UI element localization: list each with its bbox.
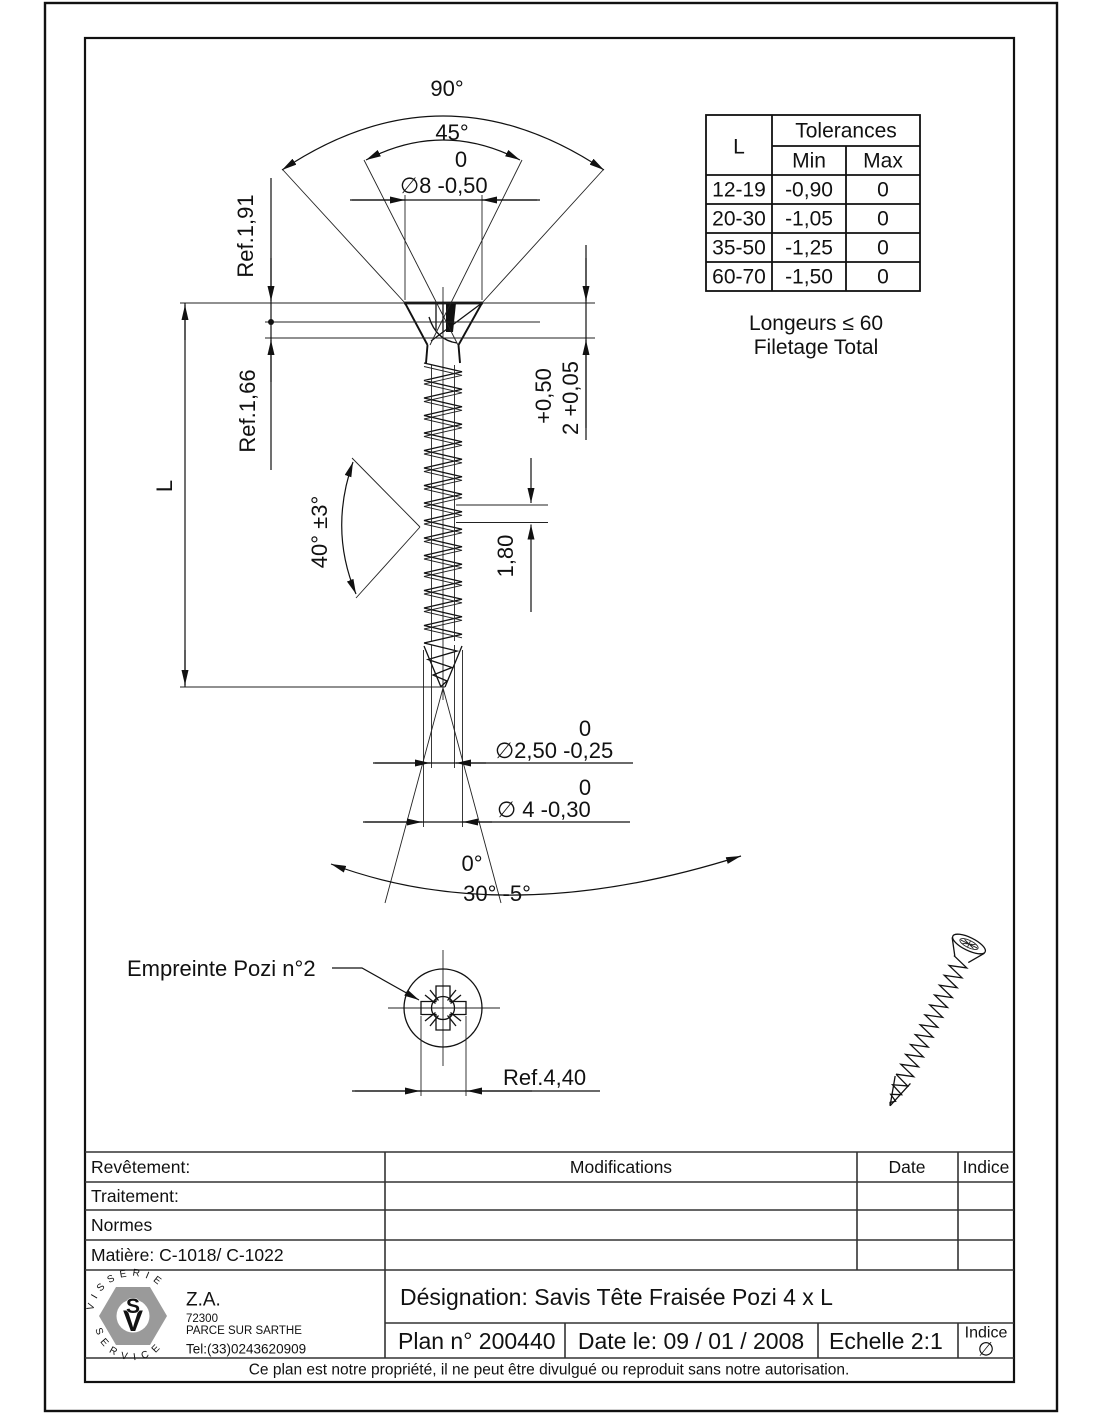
dim-head-dia-label: ∅8 -0,50 [400,173,488,198]
echelle-value: Echelle 2:1 [829,1328,943,1354]
designation-value: Désignation: Savis Tête Fraisée Pozi 4 x… [400,1284,833,1310]
dim-head-height-tol-label: +0,50 [531,368,556,424]
dim-tip-angle-tol-label: 0° [461,851,482,876]
logo-monogram-s: S [126,1295,140,1318]
dim-head-dia-tol-label: 0 [455,147,467,172]
note-longeurs: Longeurs ≤ 60 [749,312,883,335]
revetement-label: Revêtement: [91,1157,190,1177]
traitement-label: Traitement: [91,1186,179,1206]
note-filetage: Filetage Total [754,336,879,359]
table-cell: 0 [877,179,889,202]
modifications-header: Modifications [570,1157,672,1177]
tolerance-header: Tolerances [795,120,897,143]
date-value: Date le: 09 / 01 / 2008 [578,1328,804,1354]
recess-width-label: Ref.4,40 [503,1065,586,1090]
plan-number: Plan n° 200440 [398,1328,556,1354]
technical-drawing: L Tolerances Min Max 12-19 -0,90 0 20-30… [0,0,1100,1422]
indice-cell-value: ∅ [978,1340,995,1361]
tolerance-table: L Tolerances Min Max 12-19 -0,90 0 20-30… [706,115,920,359]
tolerance-min: Min [792,150,826,173]
company-zip: 72300 [186,1313,218,1325]
normes-label: Normes [91,1215,153,1235]
recess-callout-label: Empreinte Pozi n°2 [127,956,316,981]
screw-front-view [404,287,483,700]
company-logo: V S VISSERIE SERVICE Z.A. 72300 PARCE SU… [85,1268,306,1364]
table-cell: 0 [877,266,889,289]
dimension-linework [180,116,741,903]
dim-head-height-label: 2 +0,05 [558,361,583,435]
table-cell: 0 [877,237,889,260]
matiere-label: Matière: C-1018/ C-1022 [91,1245,284,1265]
tolerance-max: Max [863,150,903,173]
dim-outer-dia-label: ∅ 4 -0,30 [497,797,591,822]
table-cell: 0 [877,208,889,231]
property-notice: Ce plan est notre propriété, il ne peut … [249,1362,850,1379]
pozi-recess-view: Empreinte Pozi n°2 Ref.4,40 [127,950,600,1096]
table-cell: -1,50 [785,266,833,289]
table-cell: -1,25 [785,237,833,260]
company-city: PARCE SUR SARTHE [186,1325,302,1337]
dim-ref-head-label: Ref.1,91 [233,194,258,277]
indice-header: Indice [963,1157,1010,1177]
table-cell: -0,90 [785,179,833,202]
table-cell: 35-50 [712,237,766,260]
dim-thread-angle-label: 40° ±3° [307,496,332,569]
dim-tip-angle-label: 30° -5° [463,881,531,906]
page-frame [45,3,1057,1411]
dim-core-dia-label: ∅2,50 -0,25 [495,738,613,763]
dim-angle-inner-label: 45° [435,120,468,145]
table-cell: 60-70 [712,266,766,289]
table-cell: -1,05 [785,208,833,231]
drawing-page: L Tolerances Min Max 12-19 -0,90 0 20-30… [0,0,1100,1422]
dim-length-label: L [152,480,177,492]
company-tel: Tel:(33)0243620909 [186,1342,306,1357]
dim-pitch-label: 1,80 [493,535,518,578]
table-cell: 12-19 [712,179,766,202]
dim-angle-outer-label: 90° [430,76,463,101]
table-cell: 20-30 [712,208,766,231]
date-header: Date [889,1157,926,1177]
tolerance-col-l: L [733,136,745,159]
screw-3d-view [874,930,988,1113]
company-za: Z.A. [186,1290,221,1311]
dim-ref-neck-label: Ref.1,66 [235,369,260,452]
